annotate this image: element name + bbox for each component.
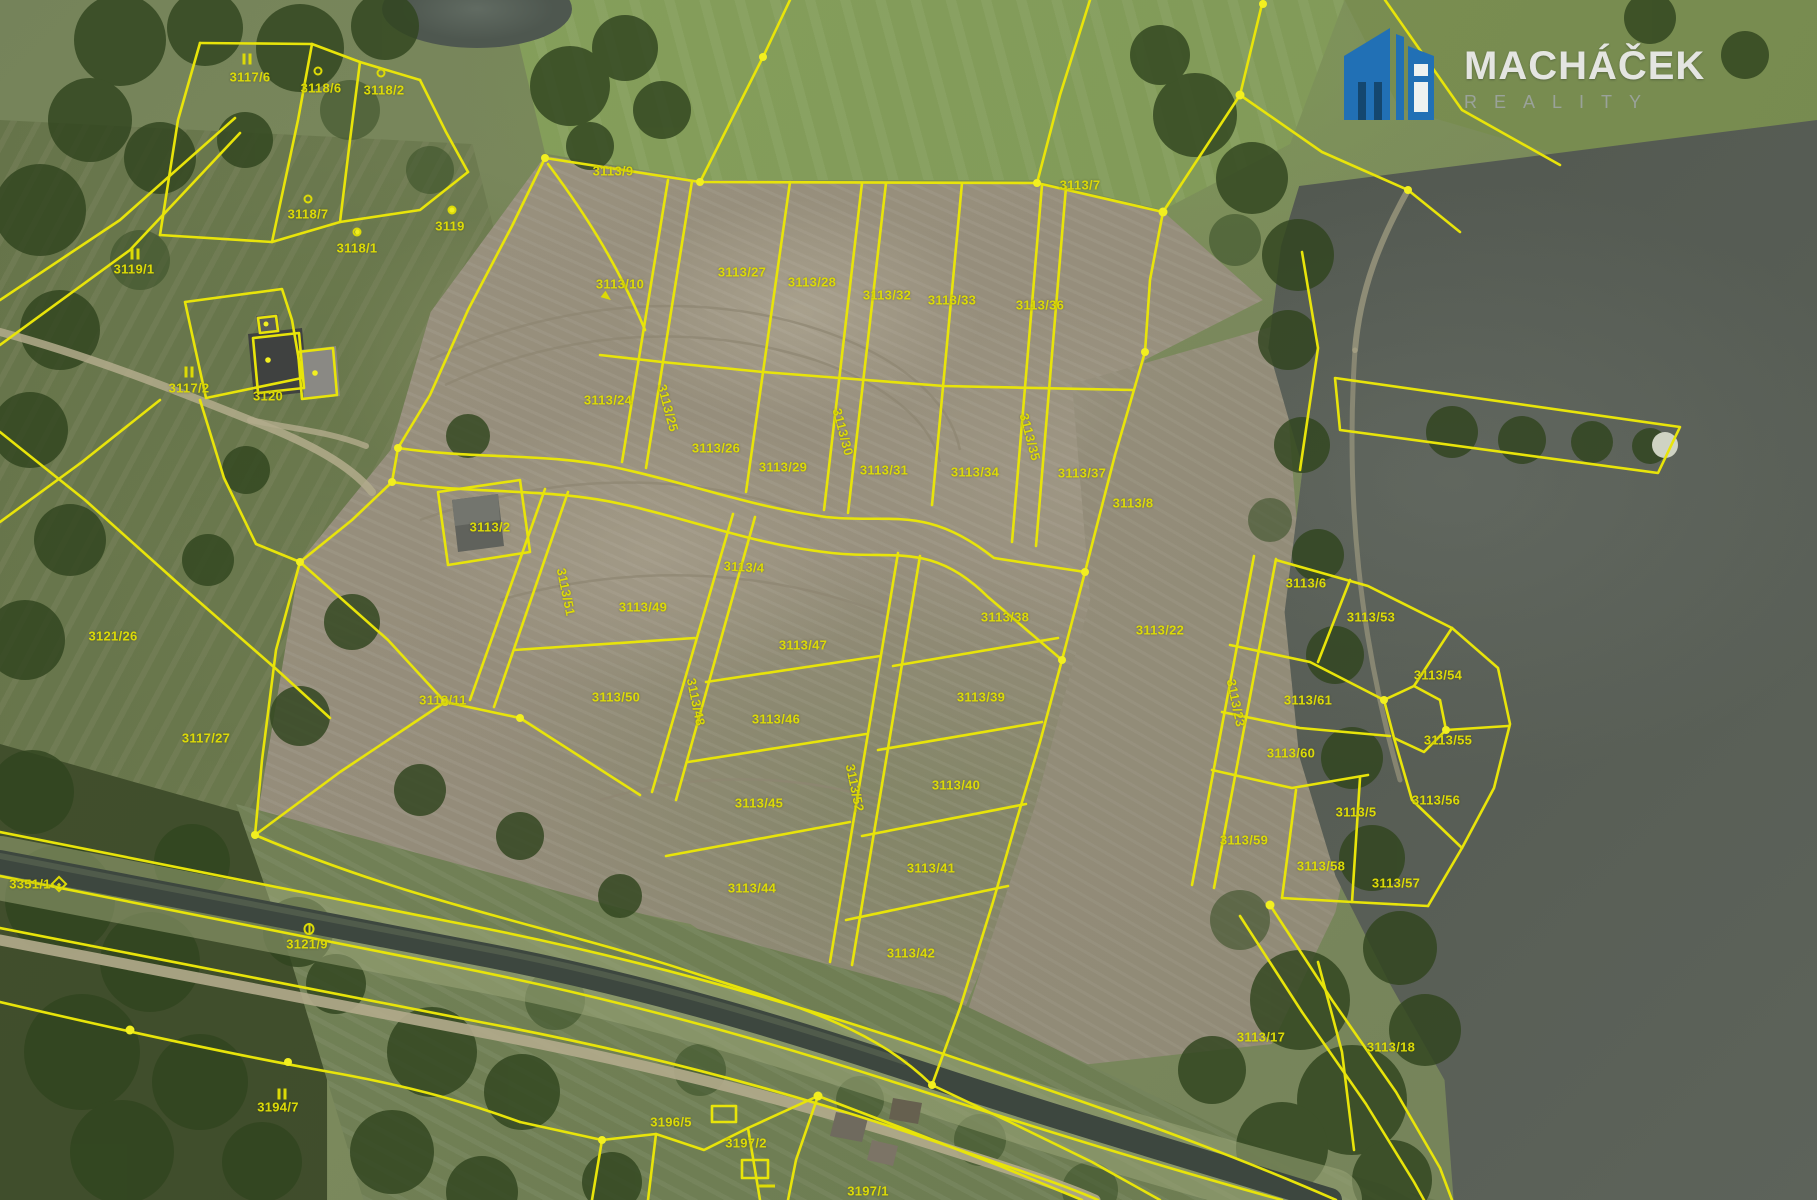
survey-marker-theta <box>304 923 315 935</box>
survey-marker-circle <box>314 67 323 76</box>
realty-logo: MACHÁČEK REALITY <box>1338 20 1808 125</box>
survey-marker-circle <box>448 206 457 215</box>
survey-marker-circle <box>353 228 362 237</box>
survey-marker-ii <box>131 249 140 260</box>
survey-marker-diamond <box>51 876 68 893</box>
survey-marker-ii <box>243 54 252 65</box>
survey-marker-dash <box>759 1185 775 1188</box>
survey-marker-circle <box>304 195 313 204</box>
logo-title: MACHÁČEK <box>1464 46 1705 86</box>
logo-text: MACHÁČEK REALITY <box>1464 20 1705 111</box>
survey-marker-ii <box>185 367 194 378</box>
survey-marker-ii <box>278 1089 287 1100</box>
logo-subtitle: REALITY <box>1464 93 1705 111</box>
survey-markers-layer <box>0 0 1817 1200</box>
logo-building-icon <box>1338 20 1442 122</box>
survey-marker-circle <box>377 69 386 78</box>
map-canvas[interactable]: 3117/63118/63118/23118/73119/13118/13119… <box>0 0 1817 1200</box>
survey-marker-arrow <box>601 291 614 303</box>
